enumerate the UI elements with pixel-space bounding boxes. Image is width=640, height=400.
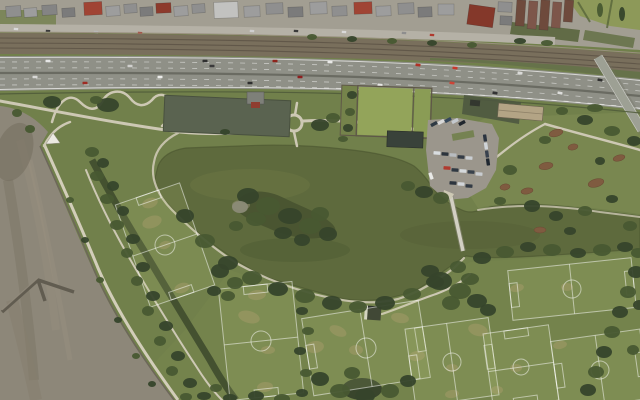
parked-car bbox=[449, 181, 456, 185]
motorway-vehicle bbox=[46, 60, 51, 63]
tree bbox=[467, 42, 477, 48]
tree bbox=[66, 197, 74, 203]
tree bbox=[81, 237, 89, 243]
tree bbox=[604, 326, 620, 338]
house-roof bbox=[24, 8, 37, 18]
house-roof bbox=[467, 4, 496, 27]
tree bbox=[96, 277, 104, 283]
tree bbox=[503, 165, 517, 175]
tree bbox=[142, 306, 154, 316]
motorway-vehicle bbox=[158, 76, 163, 79]
motorway-vehicle bbox=[298, 76, 303, 79]
tree bbox=[296, 307, 308, 315]
house-roof bbox=[376, 6, 391, 17]
house-roof bbox=[140, 7, 153, 17]
tree bbox=[375, 296, 395, 310]
court-building-red bbox=[251, 102, 260, 108]
house-roof bbox=[6, 6, 22, 18]
tree bbox=[114, 317, 122, 323]
parked-car bbox=[443, 166, 450, 170]
tree bbox=[322, 296, 342, 310]
tree bbox=[564, 227, 576, 235]
tree bbox=[330, 384, 350, 398]
tree bbox=[166, 366, 178, 376]
tree bbox=[593, 244, 611, 256]
house-roof bbox=[156, 3, 172, 14]
tree bbox=[121, 248, 133, 258]
tree bbox=[401, 181, 415, 191]
football-pitch bbox=[405, 318, 499, 400]
tree bbox=[100, 194, 114, 204]
tree bbox=[311, 372, 329, 386]
house-roof bbox=[214, 2, 239, 19]
house-roof bbox=[551, 2, 562, 29]
vehicle bbox=[294, 30, 299, 33]
vehicle bbox=[402, 32, 407, 35]
tree bbox=[461, 273, 479, 285]
tree bbox=[556, 107, 568, 115]
tree bbox=[207, 286, 221, 296]
aerial-map-viewport[interactable] bbox=[0, 0, 640, 400]
tree bbox=[295, 289, 315, 303]
house-roof bbox=[42, 5, 58, 16]
parked-car bbox=[465, 156, 472, 160]
tree bbox=[496, 246, 514, 258]
tree bbox=[597, 3, 603, 17]
house-roof bbox=[498, 2, 512, 12]
vehicle bbox=[430, 34, 435, 37]
tree bbox=[326, 113, 340, 123]
tree bbox=[110, 220, 124, 230]
house-roof bbox=[515, 0, 526, 26]
vehicle bbox=[250, 30, 255, 33]
tree bbox=[131, 276, 143, 286]
tree bbox=[227, 277, 243, 289]
motorway-vehicle bbox=[83, 82, 88, 85]
house-roof bbox=[438, 4, 454, 15]
tree bbox=[514, 38, 526, 44]
parked-car bbox=[451, 168, 458, 172]
football-pitch bbox=[483, 325, 559, 400]
tree bbox=[345, 108, 355, 116]
tree bbox=[136, 262, 150, 272]
tree bbox=[146, 291, 160, 301]
motorway-vehicle bbox=[203, 60, 208, 63]
motorway-vehicle bbox=[327, 61, 332, 64]
tree bbox=[387, 38, 397, 44]
tree bbox=[176, 209, 194, 223]
tree bbox=[148, 381, 156, 387]
parked-car bbox=[433, 151, 440, 155]
tree bbox=[12, 109, 22, 117]
tree bbox=[347, 36, 357, 42]
tree bbox=[25, 125, 35, 133]
parked-car bbox=[459, 169, 466, 173]
tree bbox=[300, 369, 312, 377]
house-roof bbox=[332, 6, 347, 17]
tree bbox=[587, 104, 603, 112]
tree bbox=[344, 367, 360, 379]
water-tint bbox=[400, 221, 540, 249]
parked-car bbox=[457, 155, 464, 159]
house-roof bbox=[192, 4, 205, 14]
tree bbox=[97, 158, 109, 168]
tree bbox=[296, 389, 308, 397]
house-roof bbox=[500, 16, 512, 25]
aerial-photo bbox=[0, 0, 640, 400]
vehicle bbox=[342, 31, 347, 34]
tree bbox=[520, 242, 536, 252]
tree bbox=[117, 206, 129, 216]
tree bbox=[580, 384, 596, 396]
tree bbox=[480, 304, 496, 316]
tree bbox=[183, 378, 197, 388]
tree bbox=[278, 208, 302, 224]
motorway-vehicle bbox=[248, 82, 253, 85]
tree bbox=[450, 261, 466, 273]
house-roof bbox=[563, 0, 574, 22]
tree bbox=[421, 265, 439, 277]
tree bbox=[85, 147, 99, 157]
house-roof bbox=[288, 7, 303, 18]
tree bbox=[473, 252, 491, 264]
tree bbox=[541, 40, 553, 46]
tree bbox=[302, 327, 314, 335]
house-roof bbox=[527, 1, 538, 30]
house-roof bbox=[398, 3, 414, 15]
tree bbox=[195, 234, 215, 248]
motorway-vehicle bbox=[210, 65, 215, 68]
tree bbox=[197, 392, 211, 400]
flowerbed bbox=[534, 227, 546, 233]
tree bbox=[159, 321, 173, 331]
parked-car bbox=[449, 153, 456, 157]
tree bbox=[343, 124, 353, 132]
pitch-outline bbox=[483, 325, 559, 400]
tree bbox=[549, 211, 563, 221]
house-roof bbox=[174, 6, 189, 17]
tree bbox=[604, 126, 620, 136]
tree bbox=[268, 282, 288, 296]
tree bbox=[210, 384, 222, 392]
tree bbox=[274, 227, 292, 239]
parked-car bbox=[475, 172, 482, 176]
tree bbox=[229, 221, 243, 231]
tree bbox=[570, 248, 586, 258]
tree bbox=[442, 296, 460, 310]
tree bbox=[381, 384, 399, 398]
tree bbox=[220, 129, 230, 135]
house-roof bbox=[418, 7, 432, 17]
tree bbox=[311, 207, 329, 221]
garden-shed bbox=[470, 100, 480, 107]
tree bbox=[403, 288, 421, 300]
parked-car bbox=[465, 184, 472, 188]
motorway-vehicle bbox=[273, 60, 278, 63]
tree bbox=[90, 96, 102, 104]
tree bbox=[242, 271, 262, 285]
tree bbox=[524, 200, 540, 212]
tree bbox=[349, 301, 367, 313]
house-roof bbox=[106, 6, 121, 17]
tree bbox=[294, 234, 310, 246]
tree bbox=[494, 197, 506, 205]
house-roof bbox=[244, 6, 260, 18]
vehicle bbox=[14, 28, 19, 31]
parked-car bbox=[457, 182, 464, 186]
tree bbox=[400, 375, 416, 387]
tree bbox=[294, 347, 306, 355]
house-roof bbox=[354, 2, 372, 15]
house-roof bbox=[539, 0, 550, 30]
tree bbox=[211, 264, 229, 278]
tree bbox=[126, 234, 140, 244]
tree bbox=[221, 291, 235, 301]
tree bbox=[132, 353, 140, 359]
house-roof bbox=[62, 8, 75, 18]
tree bbox=[539, 136, 551, 144]
tree bbox=[577, 115, 593, 125]
tree bbox=[246, 212, 266, 226]
bowling-green bbox=[357, 87, 413, 137]
house-roof bbox=[84, 2, 103, 16]
tree bbox=[415, 186, 433, 198]
tree bbox=[619, 7, 625, 21]
tree bbox=[154, 336, 166, 346]
tree bbox=[427, 40, 437, 46]
tree bbox=[588, 366, 604, 378]
tree bbox=[43, 96, 61, 108]
house-roof bbox=[124, 4, 137, 14]
tree bbox=[606, 195, 618, 203]
tree bbox=[307, 34, 317, 40]
parked-car bbox=[467, 170, 474, 174]
tree bbox=[617, 242, 633, 252]
tree bbox=[433, 192, 449, 204]
tree bbox=[256, 197, 280, 215]
tree bbox=[107, 181, 119, 191]
house-roof bbox=[310, 2, 327, 15]
tree bbox=[319, 227, 337, 241]
tree bbox=[90, 171, 104, 181]
motorway-vehicle bbox=[128, 65, 133, 68]
motorway-vehicle bbox=[33, 76, 38, 79]
tree bbox=[232, 201, 248, 213]
bowling-pavilion bbox=[387, 131, 424, 148]
tree bbox=[171, 351, 185, 361]
tree bbox=[627, 345, 639, 355]
tree bbox=[347, 91, 357, 99]
tree bbox=[338, 136, 348, 142]
motorway-vehicle bbox=[415, 63, 420, 66]
tree bbox=[620, 286, 636, 298]
house-roof bbox=[266, 3, 283, 15]
parked-car bbox=[441, 152, 448, 156]
tree bbox=[612, 306, 628, 318]
tree bbox=[623, 221, 637, 231]
tree bbox=[311, 119, 329, 131]
tree bbox=[595, 157, 605, 165]
tree bbox=[543, 244, 561, 256]
tree bbox=[596, 346, 612, 358]
tree bbox=[578, 206, 592, 216]
